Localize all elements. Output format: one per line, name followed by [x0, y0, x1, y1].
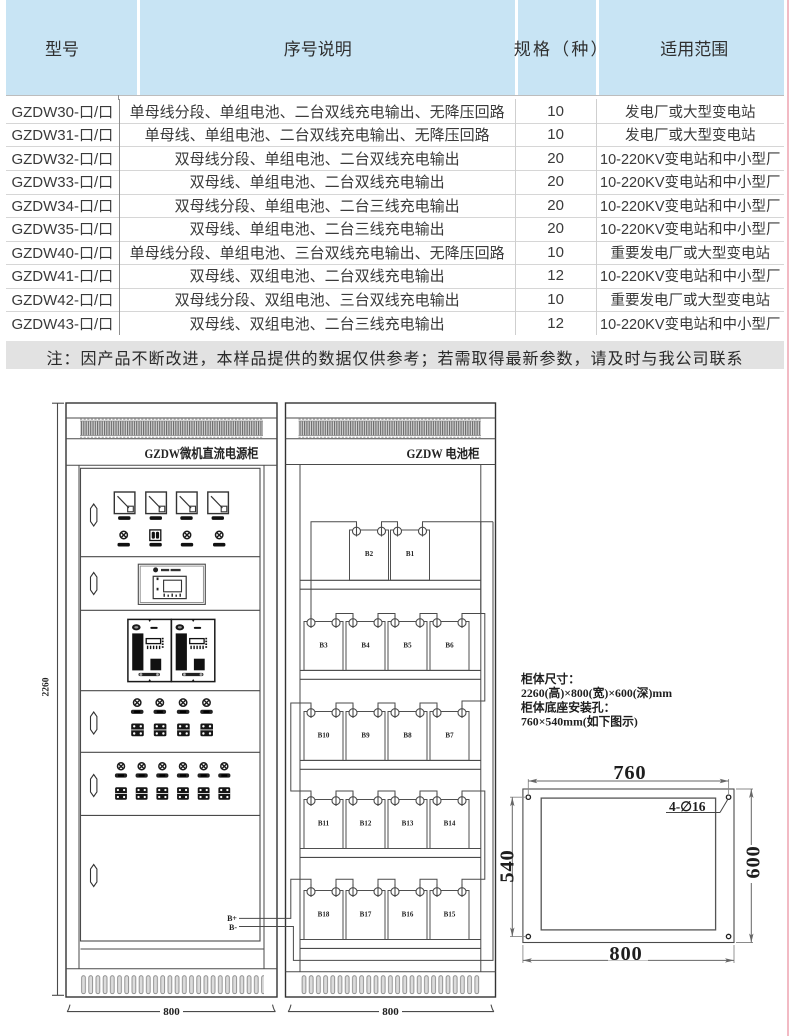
svg-text:B15: B15 [444, 911, 456, 919]
svg-text:600: 600 [743, 845, 765, 878]
svg-text:B6: B6 [445, 642, 454, 650]
svg-text:B10: B10 [318, 732, 330, 740]
svg-text:柜体尺寸：: 柜体尺寸： [520, 672, 580, 686]
svg-text:柜体底座安装孔：: 柜体底座安装孔： [520, 701, 615, 715]
svg-text:B2: B2 [365, 550, 374, 558]
svg-text:B8: B8 [403, 732, 412, 740]
svg-text:GZDW 电池柜: GZDW 电池柜 [407, 446, 480, 461]
svg-text:B12: B12 [360, 820, 372, 828]
svg-text:B5: B5 [403, 642, 412, 650]
svg-text:B16: B16 [402, 911, 414, 919]
svg-text:B1: B1 [406, 550, 415, 558]
svg-text:B17: B17 [360, 911, 372, 919]
svg-text:2260: 2260 [42, 677, 52, 696]
svg-text:B+: B+ [227, 914, 237, 923]
svg-text:540: 540 [497, 849, 519, 882]
svg-text:B4: B4 [361, 642, 370, 650]
svg-text:760: 760 [613, 762, 646, 784]
svg-text:2260(高)×800(宽)×600(深)mm: 2260(高)×800(宽)×600(深)mm [521, 686, 672, 700]
svg-text:B11: B11 [318, 820, 330, 828]
svg-text:B14: B14 [444, 820, 456, 828]
svg-text:B18: B18 [318, 911, 330, 919]
svg-text:B7: B7 [445, 732, 454, 740]
svg-text:800: 800 [382, 1006, 399, 1018]
svg-text:4-∅16: 4-∅16 [669, 799, 706, 814]
svg-text:B-: B- [229, 923, 237, 932]
svg-text:760×540mm(如下图示): 760×540mm(如下图示) [521, 715, 638, 729]
svg-text:800: 800 [163, 1006, 180, 1018]
svg-text:800: 800 [609, 943, 642, 965]
svg-text:GZDW微机直流电源柜: GZDW微机直流电源柜 [145, 446, 259, 461]
svg-text:B9: B9 [361, 732, 370, 740]
svg-text:B13: B13 [402, 820, 414, 828]
svg-text:B3: B3 [319, 642, 328, 650]
